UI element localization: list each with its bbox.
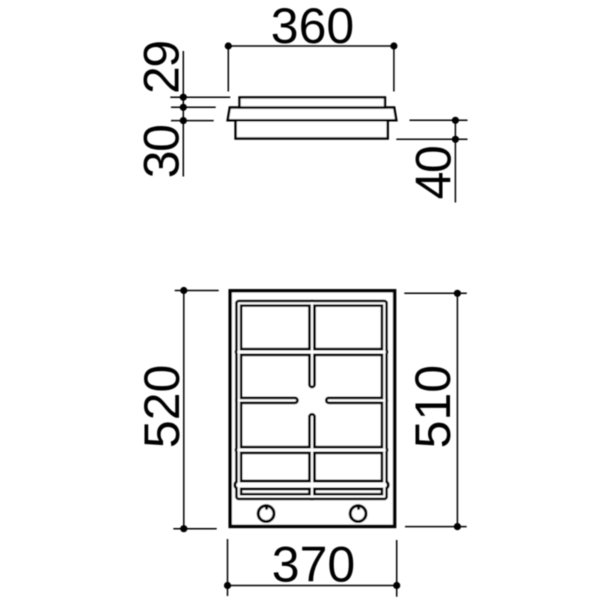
svg-text:510: 510 (405, 365, 461, 448)
svg-text:520: 520 (134, 365, 190, 448)
svg-text:30: 30 (133, 125, 189, 178)
svg-text:40: 40 (406, 147, 462, 200)
svg-text:29: 29 (133, 41, 189, 94)
svg-text:370: 370 (272, 537, 355, 593)
svg-text:360: 360 (271, 0, 354, 54)
